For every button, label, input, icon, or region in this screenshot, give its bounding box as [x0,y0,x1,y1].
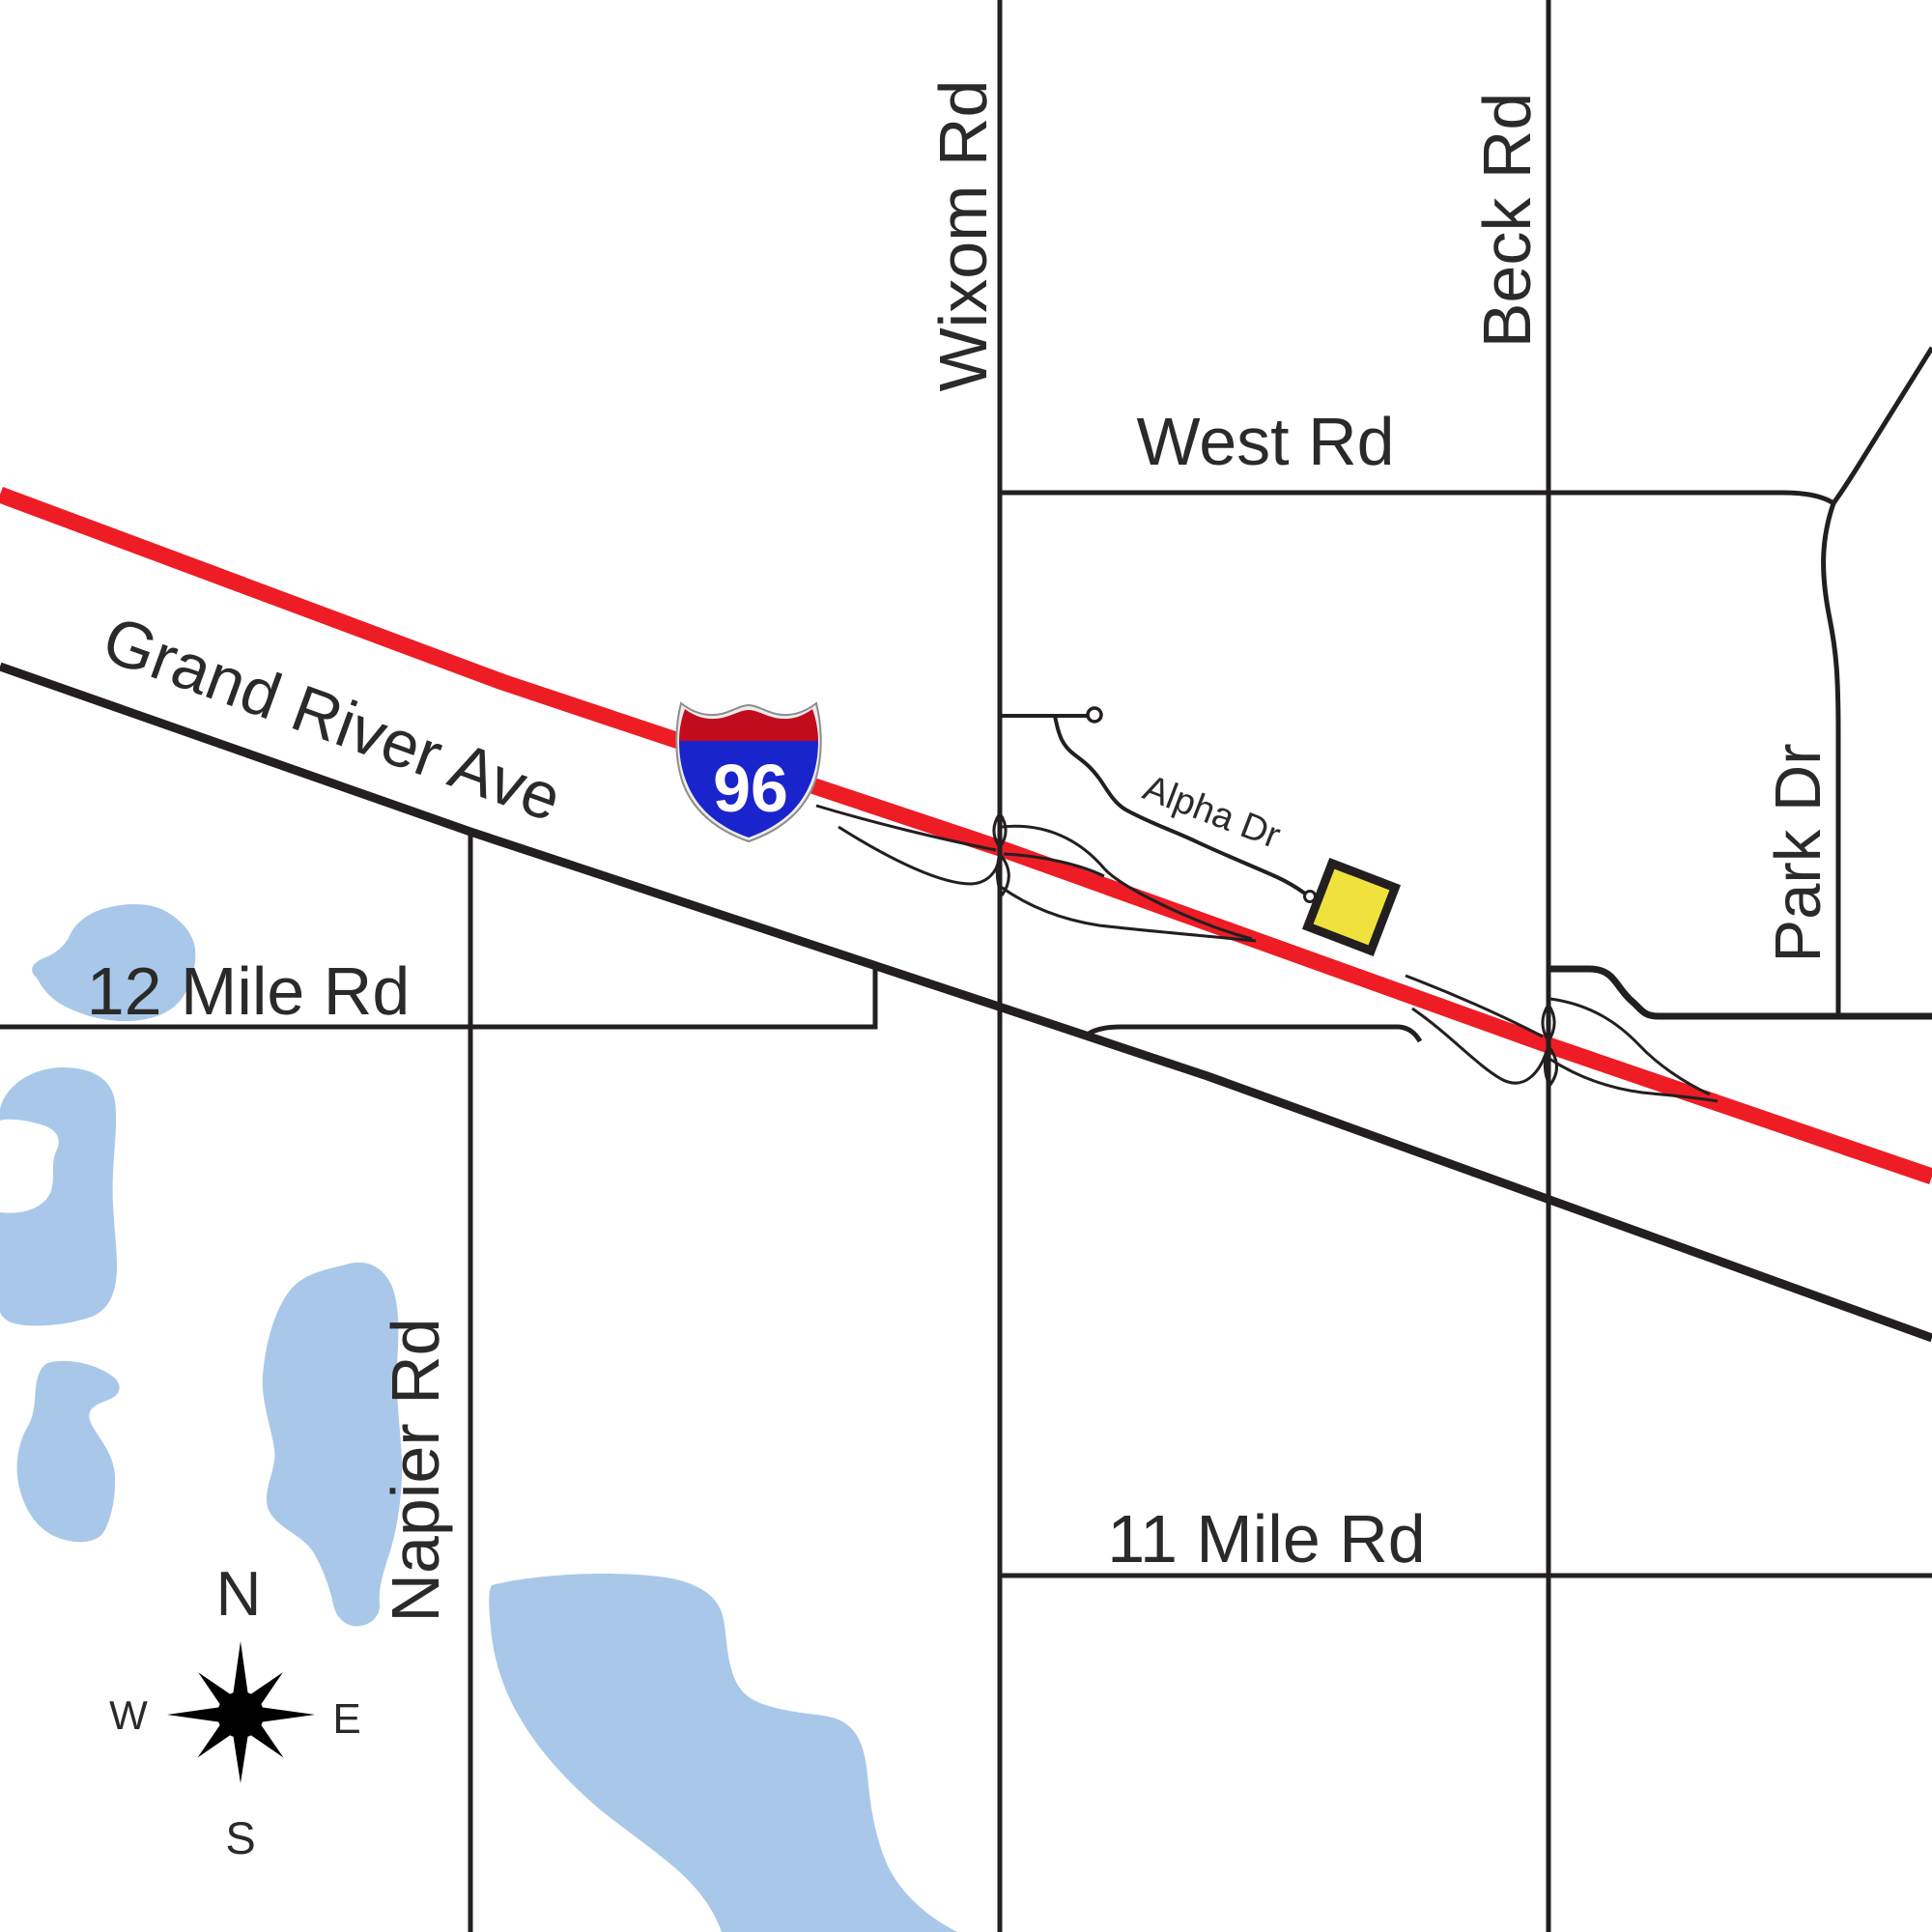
svg-text:Wixom Rd: Wixom Rd [925,80,1001,392]
svg-text:11 Mile Rd: 11 Mile Rd [1107,1501,1425,1577]
svg-text:Napier Rd: Napier Rd [378,1318,453,1622]
svg-text:96: 96 [713,751,788,826]
svg-text:E: E [332,1695,360,1743]
svg-text:West Rd: West Rd [1136,404,1394,479]
svg-text:Beck Rd: Beck Rd [1469,93,1545,349]
svg-text:Park Dr: Park Dr [1762,743,1834,962]
svg-text:W: W [109,1692,148,1738]
svg-text:12 Mile Rd: 12 Mile Rd [87,953,411,1029]
svg-text:S: S [225,1812,255,1863]
svg-text:N: N [216,1558,262,1629]
